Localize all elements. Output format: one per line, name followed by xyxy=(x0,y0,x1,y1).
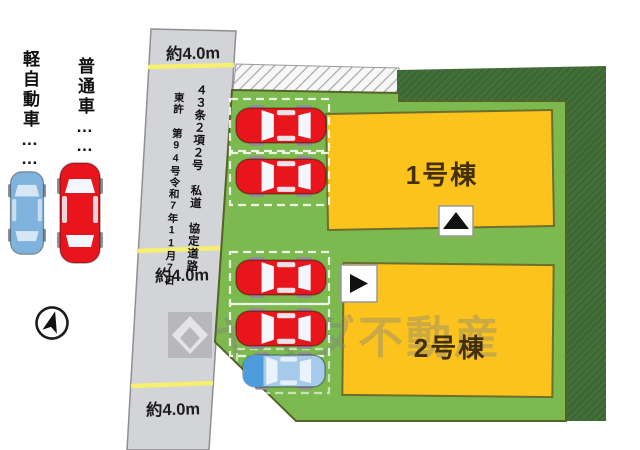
road-width-label-middle: 約4.0m xyxy=(140,261,225,287)
entrance-arrow-up-icon xyxy=(439,206,473,236)
road-width-label-bottom: 約4.0m xyxy=(131,395,216,421)
parked-car-red xyxy=(236,257,326,298)
road-width-label-top: 約4.0m xyxy=(151,39,236,65)
parked-car-light-blue xyxy=(243,352,325,389)
legend-kei-car xyxy=(8,172,46,255)
parked-car-red xyxy=(236,105,326,146)
road-lane-line-top xyxy=(148,65,234,67)
legend-kei-label: 軽自動車 xyxy=(20,50,39,130)
building-1-label: 1号棟 xyxy=(342,155,542,192)
legend-item-kei: 軽自動車…… xyxy=(17,50,42,168)
entrance-arrow-right-icon xyxy=(341,265,377,302)
legend-kei-leader: …… xyxy=(20,130,39,168)
legend-futsu-car xyxy=(57,163,103,263)
site-plan: ヤマダ不動産 軽自動車…… 普通車…… 約4.0m 約4.0m 約4.0m ４３… xyxy=(0,0,640,450)
legend-item-futsu: 普通車…… xyxy=(72,57,97,155)
legend-futsu-label: 普通車 xyxy=(75,57,94,117)
building-2-label: 2号棟 xyxy=(350,328,550,365)
road-lane-line-bottom xyxy=(131,383,213,386)
parked-car-red xyxy=(236,308,326,349)
legend-futsu-leader: …… xyxy=(75,117,94,155)
compass-icon xyxy=(33,304,71,342)
parked-car-red xyxy=(236,156,326,197)
road-lane-line-middle xyxy=(138,248,222,251)
